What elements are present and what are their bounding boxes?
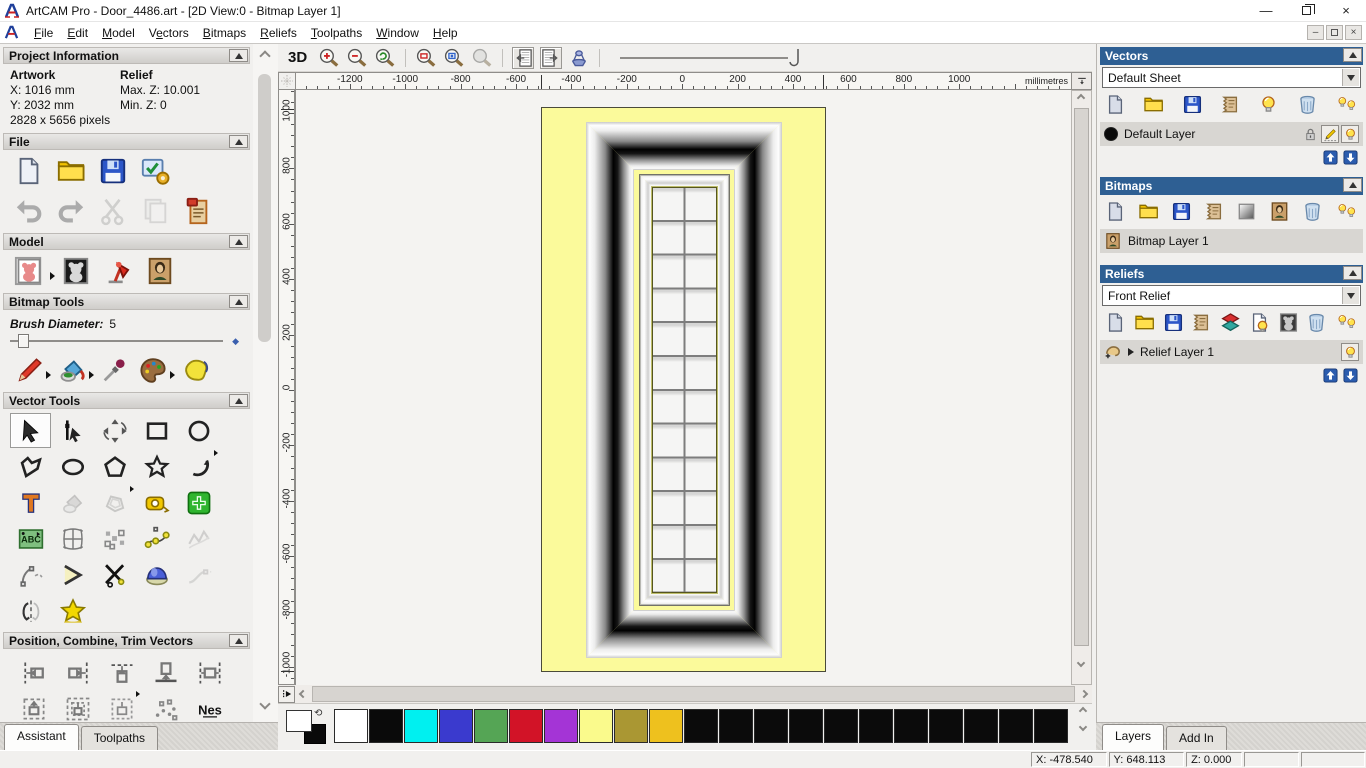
scroll-right-icon[interactable]: [1076, 691, 1092, 697]
flyout-arrow-icon[interactable]: [89, 371, 94, 379]
svg-text:ABC: ABC: [21, 534, 41, 544]
bitmaps-header: Bitmaps: [1100, 177, 1363, 195]
offset-vectors-icon: [94, 485, 135, 520]
open-layers-icon[interactable]: [1143, 94, 1164, 115]
file-section-header: File: [3, 133, 250, 150]
flyout-arrow-icon[interactable]: [214, 450, 218, 456]
palette-swatch-13[interactable]: [789, 709, 823, 743]
door-inner-frame: [639, 174, 730, 606]
centre-in-rect-icon[interactable]: [56, 690, 97, 722]
layer-name: Default Layer: [1124, 127, 1195, 141]
rollup-button[interactable]: [229, 634, 248, 647]
scroll-thumb[interactable]: [1074, 108, 1089, 646]
model-properties-icon[interactable]: [140, 156, 170, 186]
tab-add-in[interactable]: Add In: [1166, 726, 1227, 750]
merge-layers-icon[interactable]: [1204, 201, 1225, 222]
set-model-size-icon[interactable]: [14, 256, 44, 286]
ruler-label: 1000: [282, 96, 293, 126]
visibility-bulb-icon[interactable]: [1258, 94, 1279, 115]
brush-diameter-slider[interactable]: ◆: [10, 333, 239, 349]
palette-swatch-18[interactable]: [964, 709, 998, 743]
vectors-header: Vectors: [1100, 47, 1363, 65]
bitmap-preview-icon[interactable]: [1269, 201, 1290, 222]
palette-scroll-up-icon[interactable]: [1079, 707, 1087, 715]
align-left-icon[interactable]: [12, 654, 53, 689]
assistant-scrollbar[interactable]: [253, 44, 278, 722]
artcam-logo-icon: [4, 3, 20, 19]
restore-button[interactable]: [1286, 0, 1326, 21]
view-toolbar: 3D: [278, 44, 1092, 72]
node-editing-icon[interactable]: [52, 413, 93, 448]
palette-swatch-14[interactable]: [824, 709, 858, 743]
rollup-button[interactable]: [229, 394, 248, 407]
rollup-button[interactable]: [229, 49, 248, 62]
paint-brush-icon[interactable]: [14, 355, 44, 385]
align-bottom-icon[interactable]: [144, 654, 185, 689]
open-layers-icon[interactable]: [1134, 312, 1155, 333]
arc-tool-icon[interactable]: [178, 449, 219, 484]
status-empty-2: [1301, 752, 1365, 767]
bulb-page-icon[interactable]: [1249, 312, 1270, 333]
palette-swatch-8[interactable]: [614, 709, 648, 743]
ruler-label: -1000: [392, 74, 418, 85]
bisector-icon[interactable]: [52, 557, 93, 592]
open-layers-icon[interactable]: [1138, 201, 1159, 222]
scroll-left-icon[interactable]: [295, 691, 311, 697]
vector-tools-grid: ABC: [0, 409, 253, 629]
menu-bitmaps[interactable]: Bitmaps: [196, 24, 253, 42]
paste-in-position-icon[interactable]: [100, 690, 141, 722]
relief-select[interactable]: Front Relief: [1102, 285, 1361, 306]
scroll-up-icon[interactable]: [259, 50, 270, 61]
vector-layer-row[interactable]: Default Layer: [1100, 122, 1363, 146]
ruler-label: 200: [729, 74, 746, 85]
fade-slider-handle[interactable]: [788, 48, 802, 68]
tab-assistant[interactable]: Assistant: [4, 724, 79, 750]
move-layer-down-icon[interactable]: [1343, 150, 1358, 165]
combo-arrow-icon[interactable]: [1342, 287, 1359, 304]
scroll-thumb[interactable]: [312, 686, 1075, 702]
menu-reliefs[interactable]: Reliefs: [253, 24, 304, 42]
save-layers-icon[interactable]: [1163, 312, 1184, 333]
rollup-button[interactable]: [229, 235, 248, 248]
trim-vectors-icon[interactable]: [94, 557, 135, 592]
vectors-toolbar: [1097, 88, 1366, 119]
fit-arcs-icon[interactable]: [10, 557, 51, 592]
flood-fill-icon[interactable]: [57, 355, 87, 385]
scroll-up-icon[interactable]: [1077, 94, 1085, 102]
move-layer-up-icon[interactable]: [1323, 150, 1338, 165]
fade-bitmap-icon[interactable]: [568, 47, 590, 69]
layers-panel: Vectors Default Sheet Default Layer Bitm…: [1096, 44, 1366, 722]
new-bitmap-layer-icon[interactable]: [1105, 201, 1126, 222]
bitmaps-toolbar: [1097, 195, 1366, 226]
layer-name: Relief Layer 1: [1140, 345, 1214, 359]
zoom-out-icon[interactable]: [346, 47, 368, 69]
ruler-label: -400: [282, 483, 293, 513]
page-flip-button[interactable]: [278, 686, 295, 703]
flyout-arrow-icon[interactable]: [46, 371, 51, 379]
rollup-button[interactable]: [1343, 178, 1362, 192]
svg-text:Nes: Nes: [198, 702, 222, 717]
slider-handle[interactable]: [18, 334, 29, 348]
open-model-icon[interactable]: [56, 156, 86, 186]
palette-swatch-11[interactable]: [719, 709, 753, 743]
bitmap-layer-row[interactable]: Bitmap Layer 1: [1100, 229, 1363, 253]
colour-palette: ⟲: [278, 703, 1092, 750]
ruler-label: -600: [506, 74, 526, 85]
envelope-distort-icon[interactable]: [52, 521, 93, 556]
menu-file[interactable]: File: [27, 24, 60, 42]
palette-swatch-9[interactable]: [649, 709, 683, 743]
ruler-label: 800: [895, 74, 912, 85]
minimize-button[interactable]: —: [1246, 0, 1286, 21]
ruler-label: 1000: [948, 74, 970, 85]
zoom-rect-icon[interactable]: [415, 47, 437, 69]
align-top-icon[interactable]: [100, 654, 141, 689]
blend-spans-icon[interactable]: [136, 557, 177, 592]
ruler-origin-button[interactable]: [278, 72, 295, 90]
invert-model-icon[interactable]: [61, 256, 91, 286]
slider-end-icon: ◆: [232, 336, 239, 347]
transform-vectors-icon[interactable]: [94, 413, 135, 448]
rectangle-tool-icon[interactable]: [136, 413, 177, 448]
door-pane-grid: [652, 187, 717, 593]
save-model-icon[interactable]: [98, 156, 128, 186]
layer-visibility-icon[interactable]: [1341, 343, 1359, 361]
scatter-copies-icon[interactable]: [144, 690, 185, 722]
paste-icon: [140, 196, 170, 226]
vector-layer-order: [1097, 146, 1366, 167]
relief-preview-icon[interactable]: [1278, 312, 1299, 333]
greyscale-icon[interactable]: [1236, 201, 1257, 222]
brush-diameter-value: 5: [109, 317, 116, 331]
canvas-vertical-scrollbar[interactable]: [1071, 90, 1092, 685]
scroll-down-icon[interactable]: [259, 698, 270, 709]
position-tools-grid: Nes: [0, 649, 253, 722]
palette-scroll-down-icon[interactable]: [1079, 723, 1087, 731]
texture-icon[interactable]: [181, 355, 211, 385]
relief-max-z: Max. Z: 10.001: [120, 83, 200, 98]
palette-swatch-20[interactable]: [1034, 709, 1068, 743]
menu-toolpaths[interactable]: Toolpaths: [304, 24, 369, 42]
undo-icon[interactable]: [14, 196, 44, 226]
project-information: ArtworkRelief X: 1016 mmMax. Z: 10.001 Y…: [0, 64, 253, 130]
mdi-restore-button[interactable]: [1326, 25, 1343, 40]
door-artwork-page: [541, 107, 826, 672]
menu-bar: FileEditModelVectorsBitmapsReliefsToolpa…: [0, 22, 1366, 44]
close-button[interactable]: ×: [1326, 0, 1366, 21]
drawing-canvas[interactable]: [295, 90, 1071, 685]
position-combine-trim-header: Position, Combine, Trim Vectors: [3, 632, 250, 649]
flyout-arrow-icon[interactable]: [50, 272, 55, 280]
primary-colour-swatch[interactable]: [286, 710, 312, 732]
model-toolbar-row: [0, 250, 253, 290]
colour-stack-icon[interactable]: [1220, 312, 1241, 333]
artwork-pixels: 2828 x 5656 pixels: [10, 113, 243, 128]
status-empty-1: [1244, 752, 1300, 767]
zoom-in-icon[interactable]: [318, 47, 340, 69]
mdi-minimize-button[interactable]: –: [1307, 25, 1324, 40]
palette-swatch-0[interactable]: [334, 709, 368, 743]
fit-curve-icon[interactable]: [136, 521, 177, 556]
new-sheet-icon[interactable]: [1105, 94, 1126, 115]
rollup-button[interactable]: [1343, 266, 1362, 280]
assistant-tab-bar: AssistantToolpaths: [0, 722, 278, 750]
save-layers-icon[interactable]: [1182, 94, 1203, 115]
ruler-label: 400: [282, 262, 293, 292]
units-menu-button[interactable]: [1071, 72, 1092, 90]
move-layer-down-icon[interactable]: [1343, 368, 1358, 383]
ruler-label: -1200: [337, 74, 363, 85]
vertical-ruler: 10008006004002000-200-400-600-800-1000: [278, 90, 295, 685]
menu-window[interactable]: Window: [369, 24, 426, 42]
palette-swatch-19[interactable]: [999, 709, 1033, 743]
text-block-icon[interactable]: ABC: [10, 521, 51, 556]
primary-secondary-colours[interactable]: ⟲: [286, 710, 332, 746]
delete-layer-icon[interactable]: [1306, 312, 1327, 333]
mdi-close-button[interactable]: ×: [1345, 25, 1362, 40]
align-right-icon[interactable]: [56, 654, 97, 689]
relief-label: Relief: [120, 68, 153, 82]
artwork-x: X: 1016 mm: [10, 83, 120, 98]
circle-tool-icon[interactable]: [178, 413, 219, 448]
bitmap-fade-slider[interactable]: [620, 48, 802, 68]
merge-layers-icon[interactable]: [1191, 312, 1212, 333]
ruler-label: -400: [561, 74, 581, 85]
move-layer-up-icon[interactable]: [1323, 368, 1338, 383]
menu-model[interactable]: Model: [95, 24, 142, 42]
palette-swatch-5[interactable]: [509, 709, 543, 743]
menu-help[interactable]: Help: [426, 24, 465, 42]
title-bar: ArtCAM Pro - Door_4486.art - [2D View:0 …: [0, 0, 1366, 22]
edit-layer-icon[interactable]: [1321, 125, 1339, 143]
rollup-button[interactable]: [229, 295, 248, 308]
ruler-label: 600: [282, 206, 293, 236]
mirror-vectors-icon[interactable]: [10, 593, 51, 628]
relief-thumbnail-icon: [1104, 343, 1122, 361]
palette-icon[interactable]: [138, 355, 168, 385]
menu-items: FileEditModelVectorsBitmapsReliefsToolpa…: [27, 24, 465, 42]
brush-diameter-label: Brush Diameter:: [10, 317, 103, 331]
text-tool-icon[interactable]: [10, 485, 51, 520]
lock-layer-icon[interactable]: [1301, 125, 1319, 143]
palette-swatch-3[interactable]: [439, 709, 473, 743]
delete-layer-icon[interactable]: [1302, 201, 1323, 222]
cut-icon: [98, 196, 128, 226]
ruler-label: 200: [282, 317, 293, 347]
bitmap-tools-row: [0, 349, 253, 389]
ruler-label: -800: [451, 74, 471, 85]
all-visibility-icon[interactable]: [1335, 312, 1356, 333]
ellipse-tool-icon[interactable]: [52, 449, 93, 484]
new-relief-layer-icon[interactable]: [1105, 312, 1126, 333]
nesting-text-icon[interactable]: Nes: [188, 690, 229, 722]
artcam-doc-icon: [4, 25, 19, 40]
canvas-horizontal-scrollbar[interactable]: [278, 685, 1092, 703]
polygon-tool-icon[interactable]: [94, 449, 135, 484]
vector-tools-header: Vector Tools: [3, 392, 250, 409]
block-paste-icon[interactable]: [94, 521, 135, 556]
assistant-panel: Project Information ArtworkRelief X: 101…: [0, 44, 253, 722]
reliefs-header: Reliefs: [1100, 265, 1363, 283]
link-colours-icon: ⟲: [314, 708, 322, 719]
horizontal-ruler: -1200-1000-800-600-400-20002004006008001…: [295, 72, 1071, 90]
ruler-units-label: millimetres: [1025, 76, 1068, 86]
palette-swatch-2[interactable]: [404, 709, 438, 743]
palette-swatch-10[interactable]: [684, 709, 718, 743]
polyline-tool-icon[interactable]: [10, 449, 51, 484]
next-bitmap-icon[interactable]: [540, 47, 562, 69]
file-toolbar-row1: [0, 150, 253, 190]
restore-icon: [1302, 6, 1311, 15]
status-y: Y: 648.113: [1109, 752, 1185, 767]
ruler-label: 0: [679, 74, 685, 85]
ruler-label: 400: [785, 74, 802, 85]
star-tool-icon[interactable]: [136, 449, 177, 484]
palette-swatch-6[interactable]: [544, 709, 578, 743]
scroll-down-icon[interactable]: [1077, 659, 1085, 667]
expand-layer-icon[interactable]: [1128, 348, 1134, 356]
artwork-y: Y: 2032 mm: [10, 98, 120, 113]
palette-swatch-4[interactable]: [474, 709, 508, 743]
vector-doctor-icon[interactable]: [52, 593, 93, 628]
bitmap-thumbnail-icon: [1104, 232, 1122, 250]
simplify-vectors-icon: [178, 521, 219, 556]
combo-arrow-icon[interactable]: [1342, 69, 1359, 86]
ruler-label: -200: [282, 428, 293, 458]
palette-swatch-1[interactable]: [369, 709, 403, 743]
load-bitmap-icon[interactable]: [145, 256, 175, 286]
centre-in-page-icon[interactable]: [12, 690, 53, 722]
bitmap-tools-header: Bitmap Tools: [3, 293, 250, 310]
menu-vectors[interactable]: Vectors: [142, 24, 196, 42]
lighting-icon[interactable]: [103, 256, 133, 286]
tab-layers[interactable]: Layers: [1102, 724, 1164, 750]
palette-swatches: [334, 709, 1069, 745]
rollup-button[interactable]: [1343, 48, 1362, 62]
palette-swatch-17[interactable]: [929, 709, 963, 743]
flyout-arrow-icon[interactable]: [130, 486, 134, 492]
relief-select-value: Front Relief: [1108, 289, 1170, 303]
status-bar: X: -478.540 Y: 648.113 Z: 0.000: [0, 750, 1366, 768]
relief-min-z: Min. Z: 0: [120, 98, 167, 113]
ruler-label: -200: [617, 74, 637, 85]
extend-curve-icon: [178, 557, 219, 592]
ruler-label: 0: [282, 373, 293, 403]
model-section-header: Model: [3, 233, 250, 250]
all-visibility-icon[interactable]: [1335, 201, 1356, 222]
ruler-label: -600: [282, 539, 293, 569]
select-vectors-icon[interactable]: [10, 413, 51, 448]
reliefs-toolbar: [1097, 306, 1366, 337]
flyout-arrow-icon[interactable]: [136, 691, 140, 697]
all-visibility-icon[interactable]: [1335, 94, 1356, 115]
measure-tool-icon[interactable]: [136, 485, 177, 520]
align-centre-icon[interactable]: [188, 654, 229, 689]
palette-swatch-16[interactable]: [894, 709, 928, 743]
layer-bulb-icon[interactable]: [1341, 125, 1359, 143]
delete-layer-icon[interactable]: [1297, 94, 1318, 115]
status-x: X: -478.540: [1031, 752, 1107, 767]
palette-swatch-12[interactable]: [754, 709, 788, 743]
layer-colour-swatch[interactable]: [1104, 127, 1118, 141]
nesting-icon[interactable]: [178, 485, 219, 520]
relief-layer-order: [1097, 364, 1366, 385]
vector-paint-icon: [52, 485, 93, 520]
palette-swatch-15[interactable]: [859, 709, 893, 743]
scroll-thumb[interactable]: [258, 74, 271, 342]
ruler-label: -800: [282, 594, 293, 624]
zoom-object-icon[interactable]: [443, 47, 465, 69]
relief-layer-row[interactable]: Relief Layer 1: [1100, 340, 1363, 364]
artwork-label: Artwork: [10, 68, 55, 82]
ruler-label: -1000: [282, 650, 293, 680]
save-layers-icon[interactable]: [1171, 201, 1192, 222]
status-z: Z: 0.000: [1186, 752, 1242, 767]
layer-name: Bitmap Layer 1: [1128, 234, 1209, 248]
vector-sheet-select[interactable]: Default Sheet: [1102, 67, 1361, 88]
brush-diameter-row: Brush Diameter: 5: [0, 310, 253, 331]
prev-bitmap-icon[interactable]: [512, 47, 534, 69]
merge-layers-icon[interactable]: [1220, 94, 1241, 115]
new-model-icon[interactable]: [14, 156, 44, 186]
project-information-header: Project Information: [3, 47, 250, 64]
menu-edit[interactable]: Edit: [60, 24, 95, 42]
palette-swatch-7[interactable]: [579, 709, 613, 743]
layers-tab-bar: LayersAdd In: [1096, 722, 1366, 750]
toggle-3d-view-button[interactable]: 3D: [288, 49, 307, 66]
ruler-label: 600: [840, 74, 857, 85]
colour-picker-icon[interactable]: [100, 355, 130, 385]
vector-sheet-value: Default Sheet: [1108, 71, 1181, 85]
flyout-arrow-icon[interactable]: [170, 371, 175, 379]
redo-icon[interactable]: [56, 196, 86, 226]
tab-toolpaths[interactable]: Toolpaths: [81, 726, 158, 750]
window-title: ArtCAM Pro - Door_4486.art - [2D View:0 …: [26, 4, 341, 18]
file-toolbar-row2: [0, 190, 253, 230]
zoom-previous-icon[interactable]: [374, 47, 396, 69]
notes-icon[interactable]: [182, 196, 212, 226]
ruler-label: 800: [282, 151, 293, 181]
rollup-button[interactable]: [229, 135, 248, 148]
zoom-limits-icon: [471, 47, 493, 69]
